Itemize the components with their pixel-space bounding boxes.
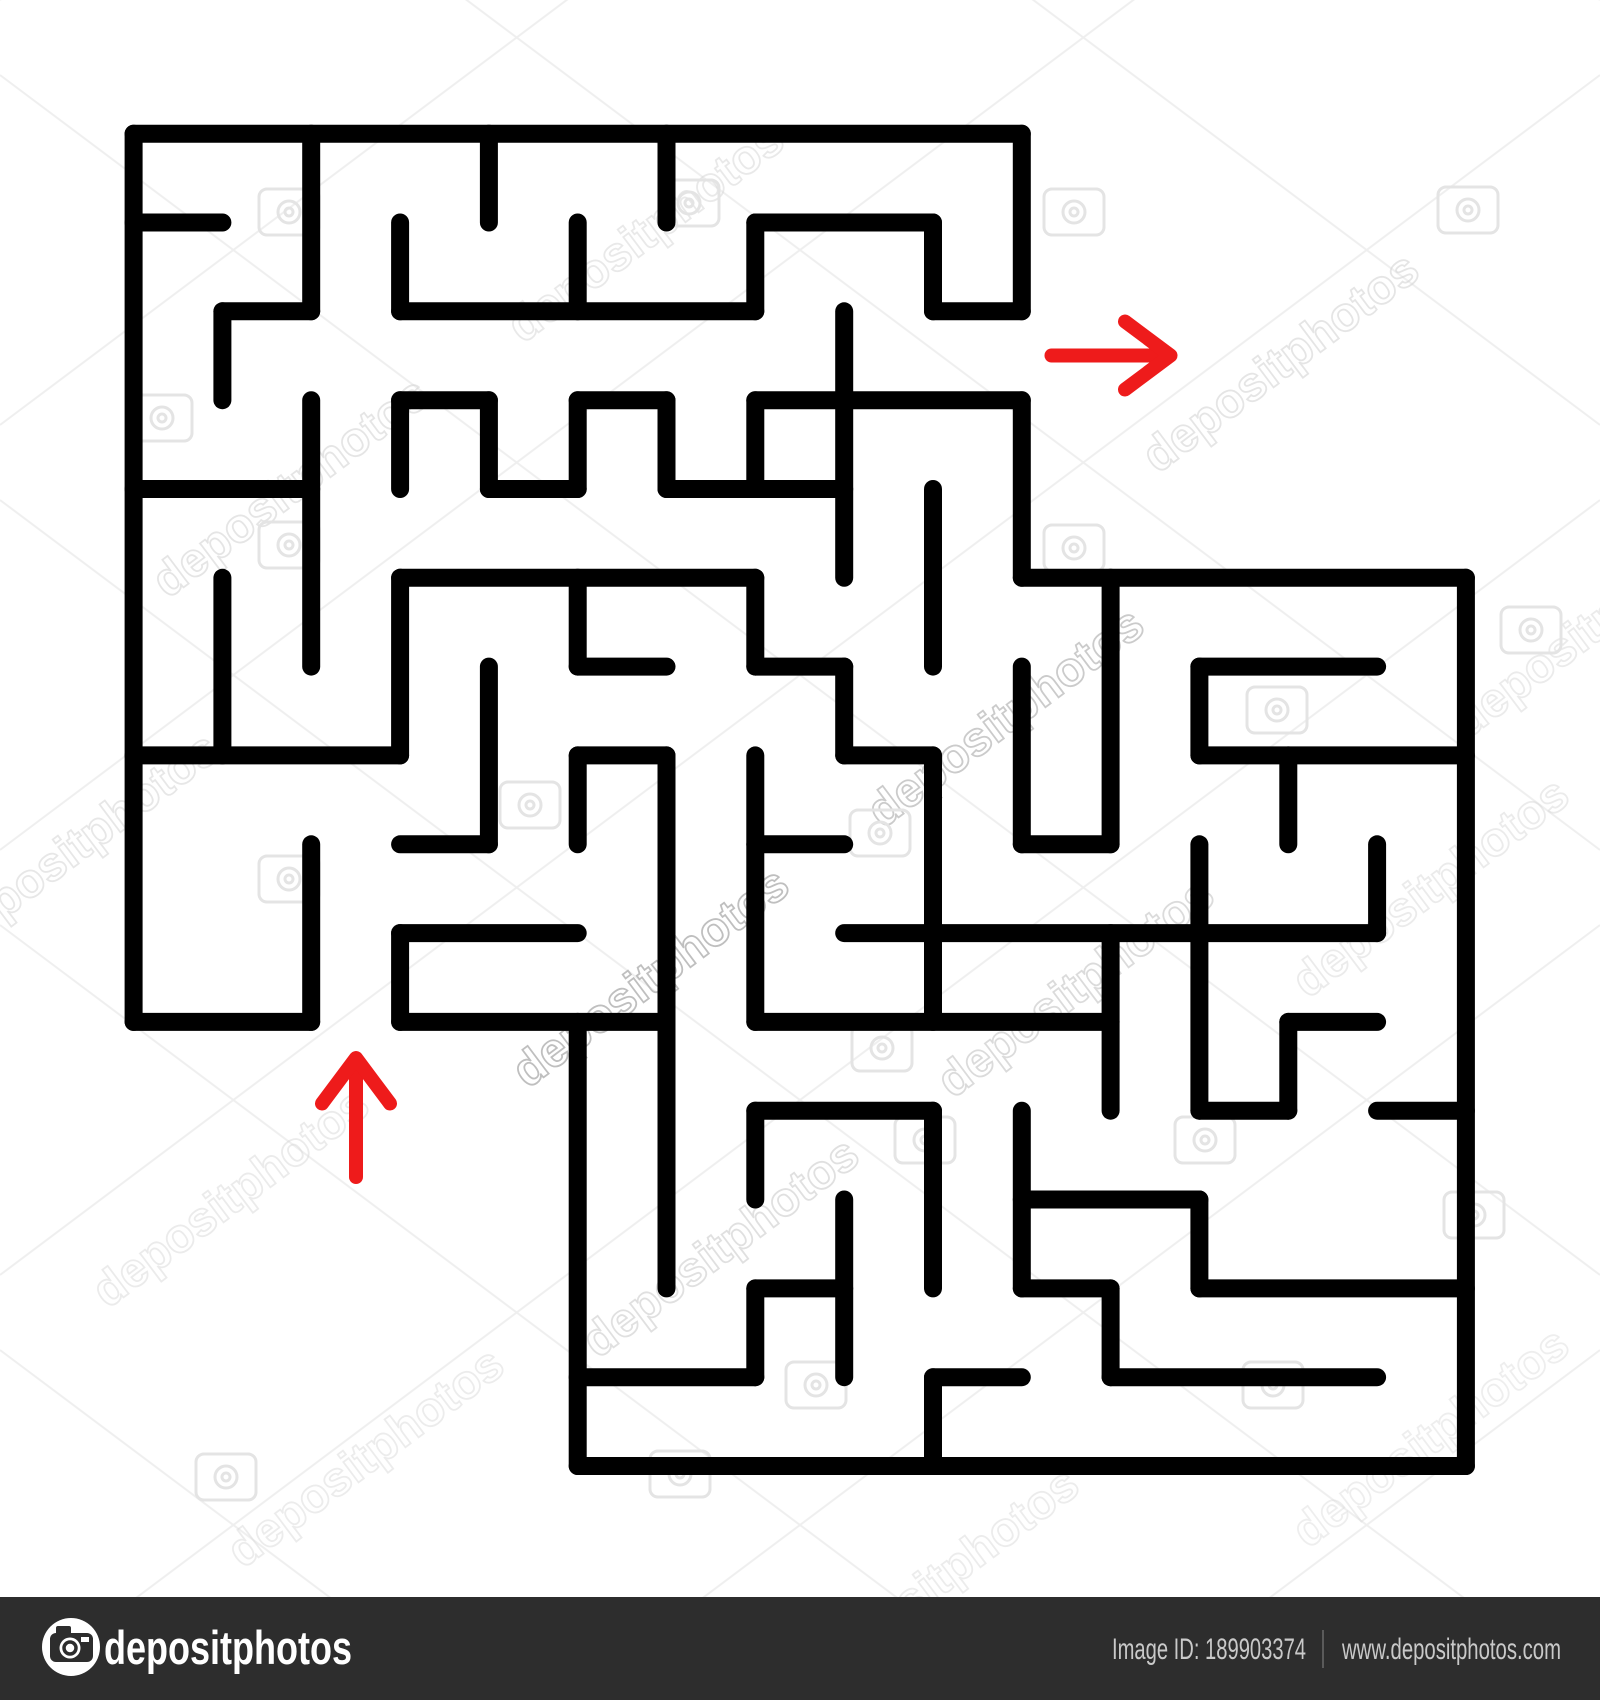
svg-text:depositphotos: depositphotos bbox=[104, 1621, 352, 1674]
svg-text:Image ID: 189903374: Image ID: 189903374 bbox=[1112, 1633, 1306, 1666]
svg-text:www.depositphotos.com: www.depositphotos.com bbox=[1341, 1633, 1561, 1666]
